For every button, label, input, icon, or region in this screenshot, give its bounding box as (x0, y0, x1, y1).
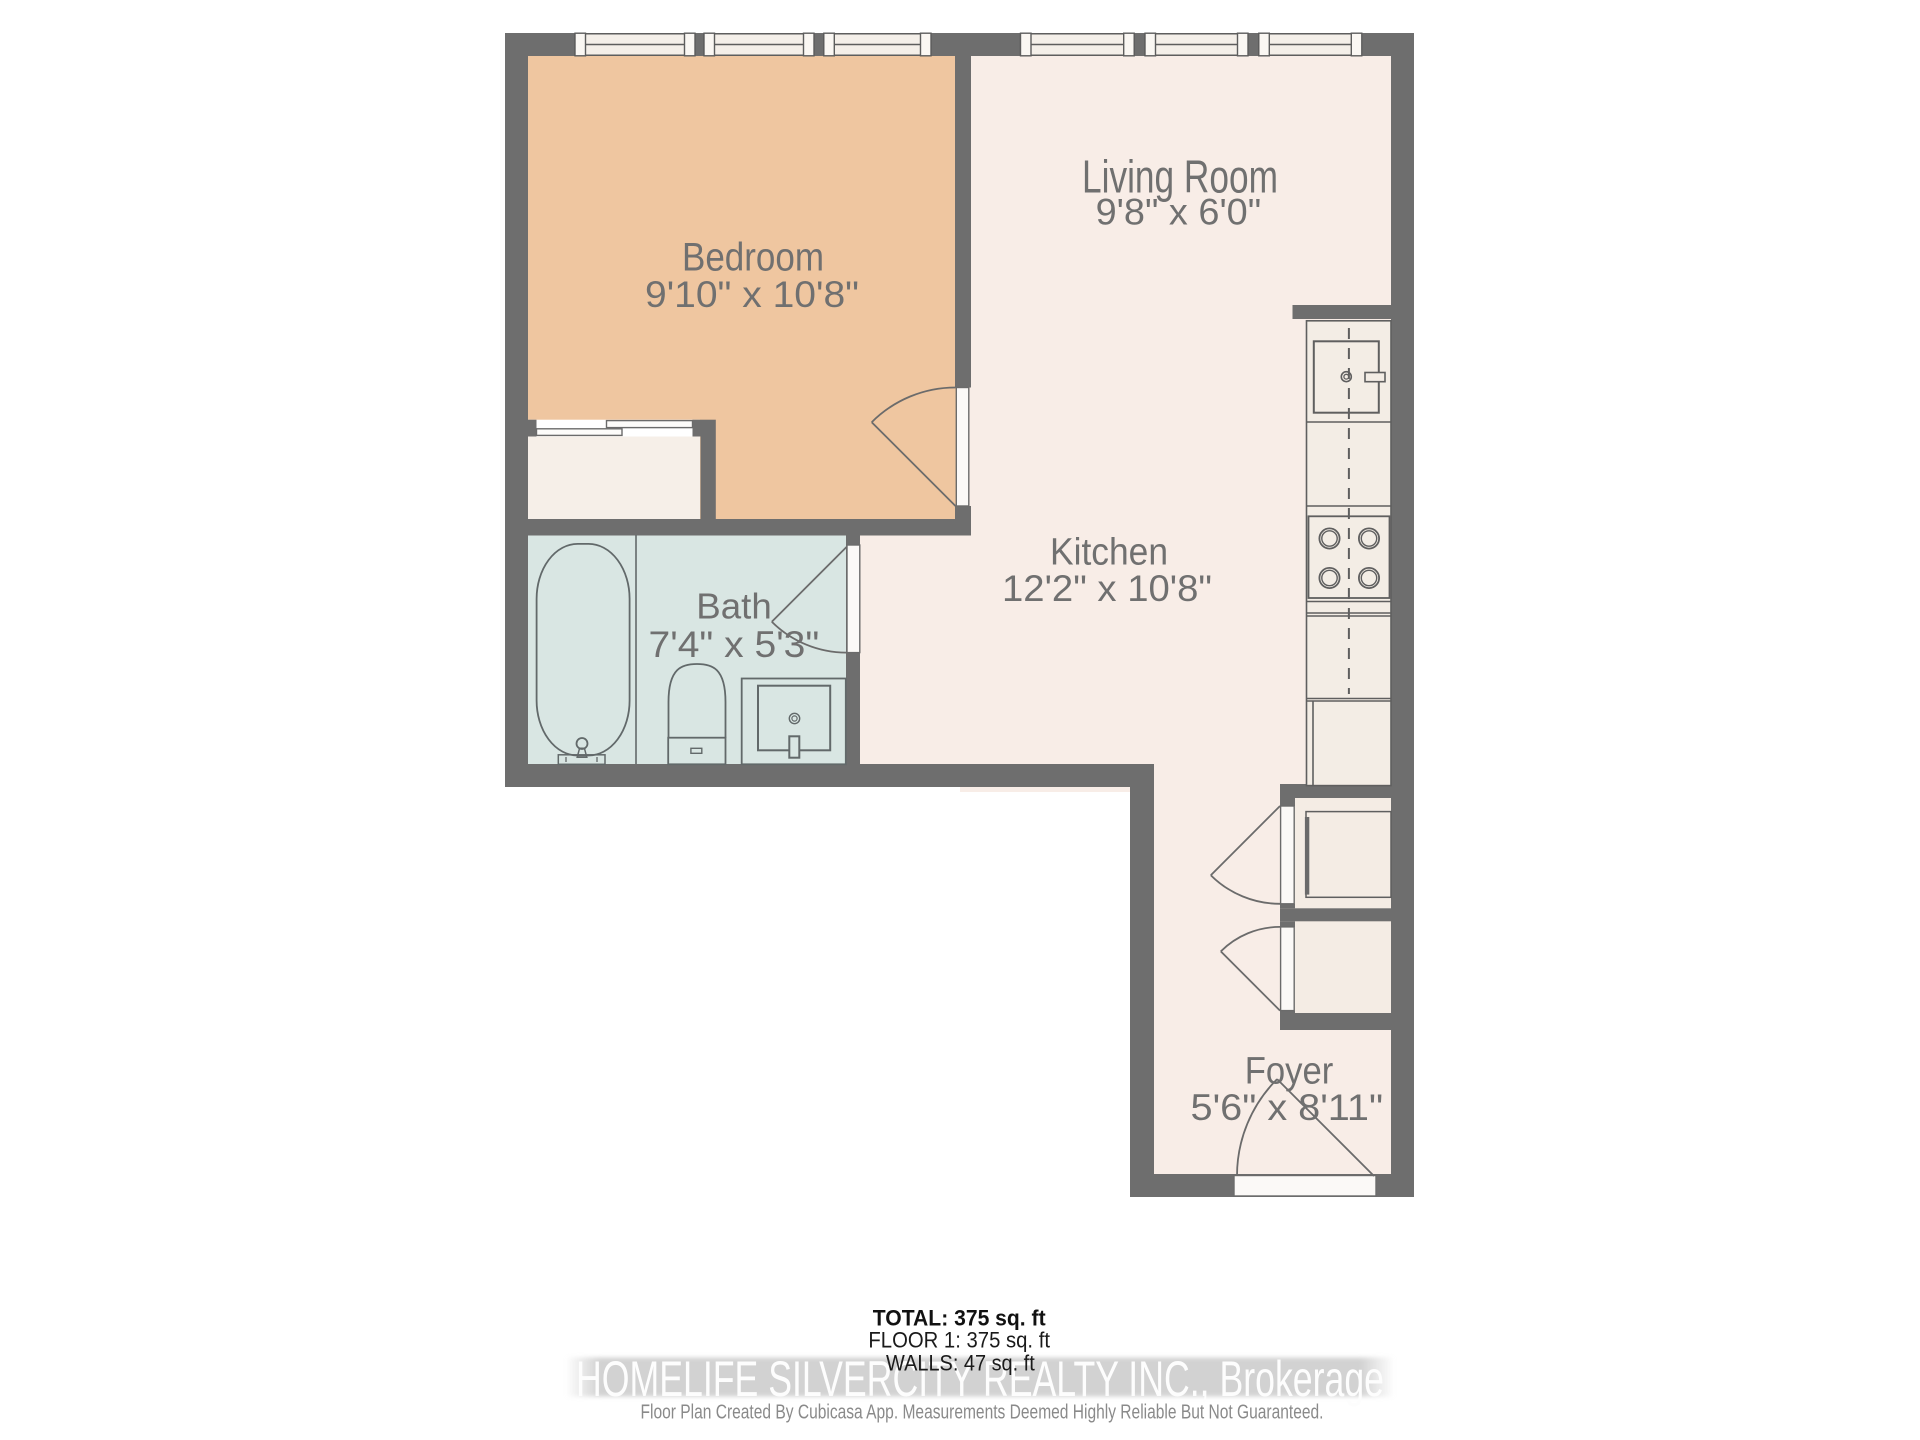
svg-text:Floor Plan Created By Cubicasa: Floor Plan Created By Cubicasa App. Meas… (641, 1402, 1324, 1424)
svg-text:WALLS: 47 sq. ft: WALLS: 47 sq. ft (886, 1350, 1035, 1375)
svg-text:7'4" x 5'3": 7'4" x 5'3" (649, 624, 820, 665)
svg-text:Bath: Bath (696, 586, 772, 627)
svg-text:FLOOR 1: 375 sq. ft: FLOOR 1: 375 sq. ft (868, 1328, 1050, 1353)
svg-text:12'2" x 10'8": 12'2" x 10'8" (1002, 568, 1212, 609)
svg-text:9'8" x 6'0": 9'8" x 6'0" (1096, 191, 1262, 232)
svg-text:5'6" x 8'11": 5'6" x 8'11" (1191, 1087, 1384, 1128)
svg-text:9'10" x 10'8": 9'10" x 10'8" (645, 274, 859, 315)
